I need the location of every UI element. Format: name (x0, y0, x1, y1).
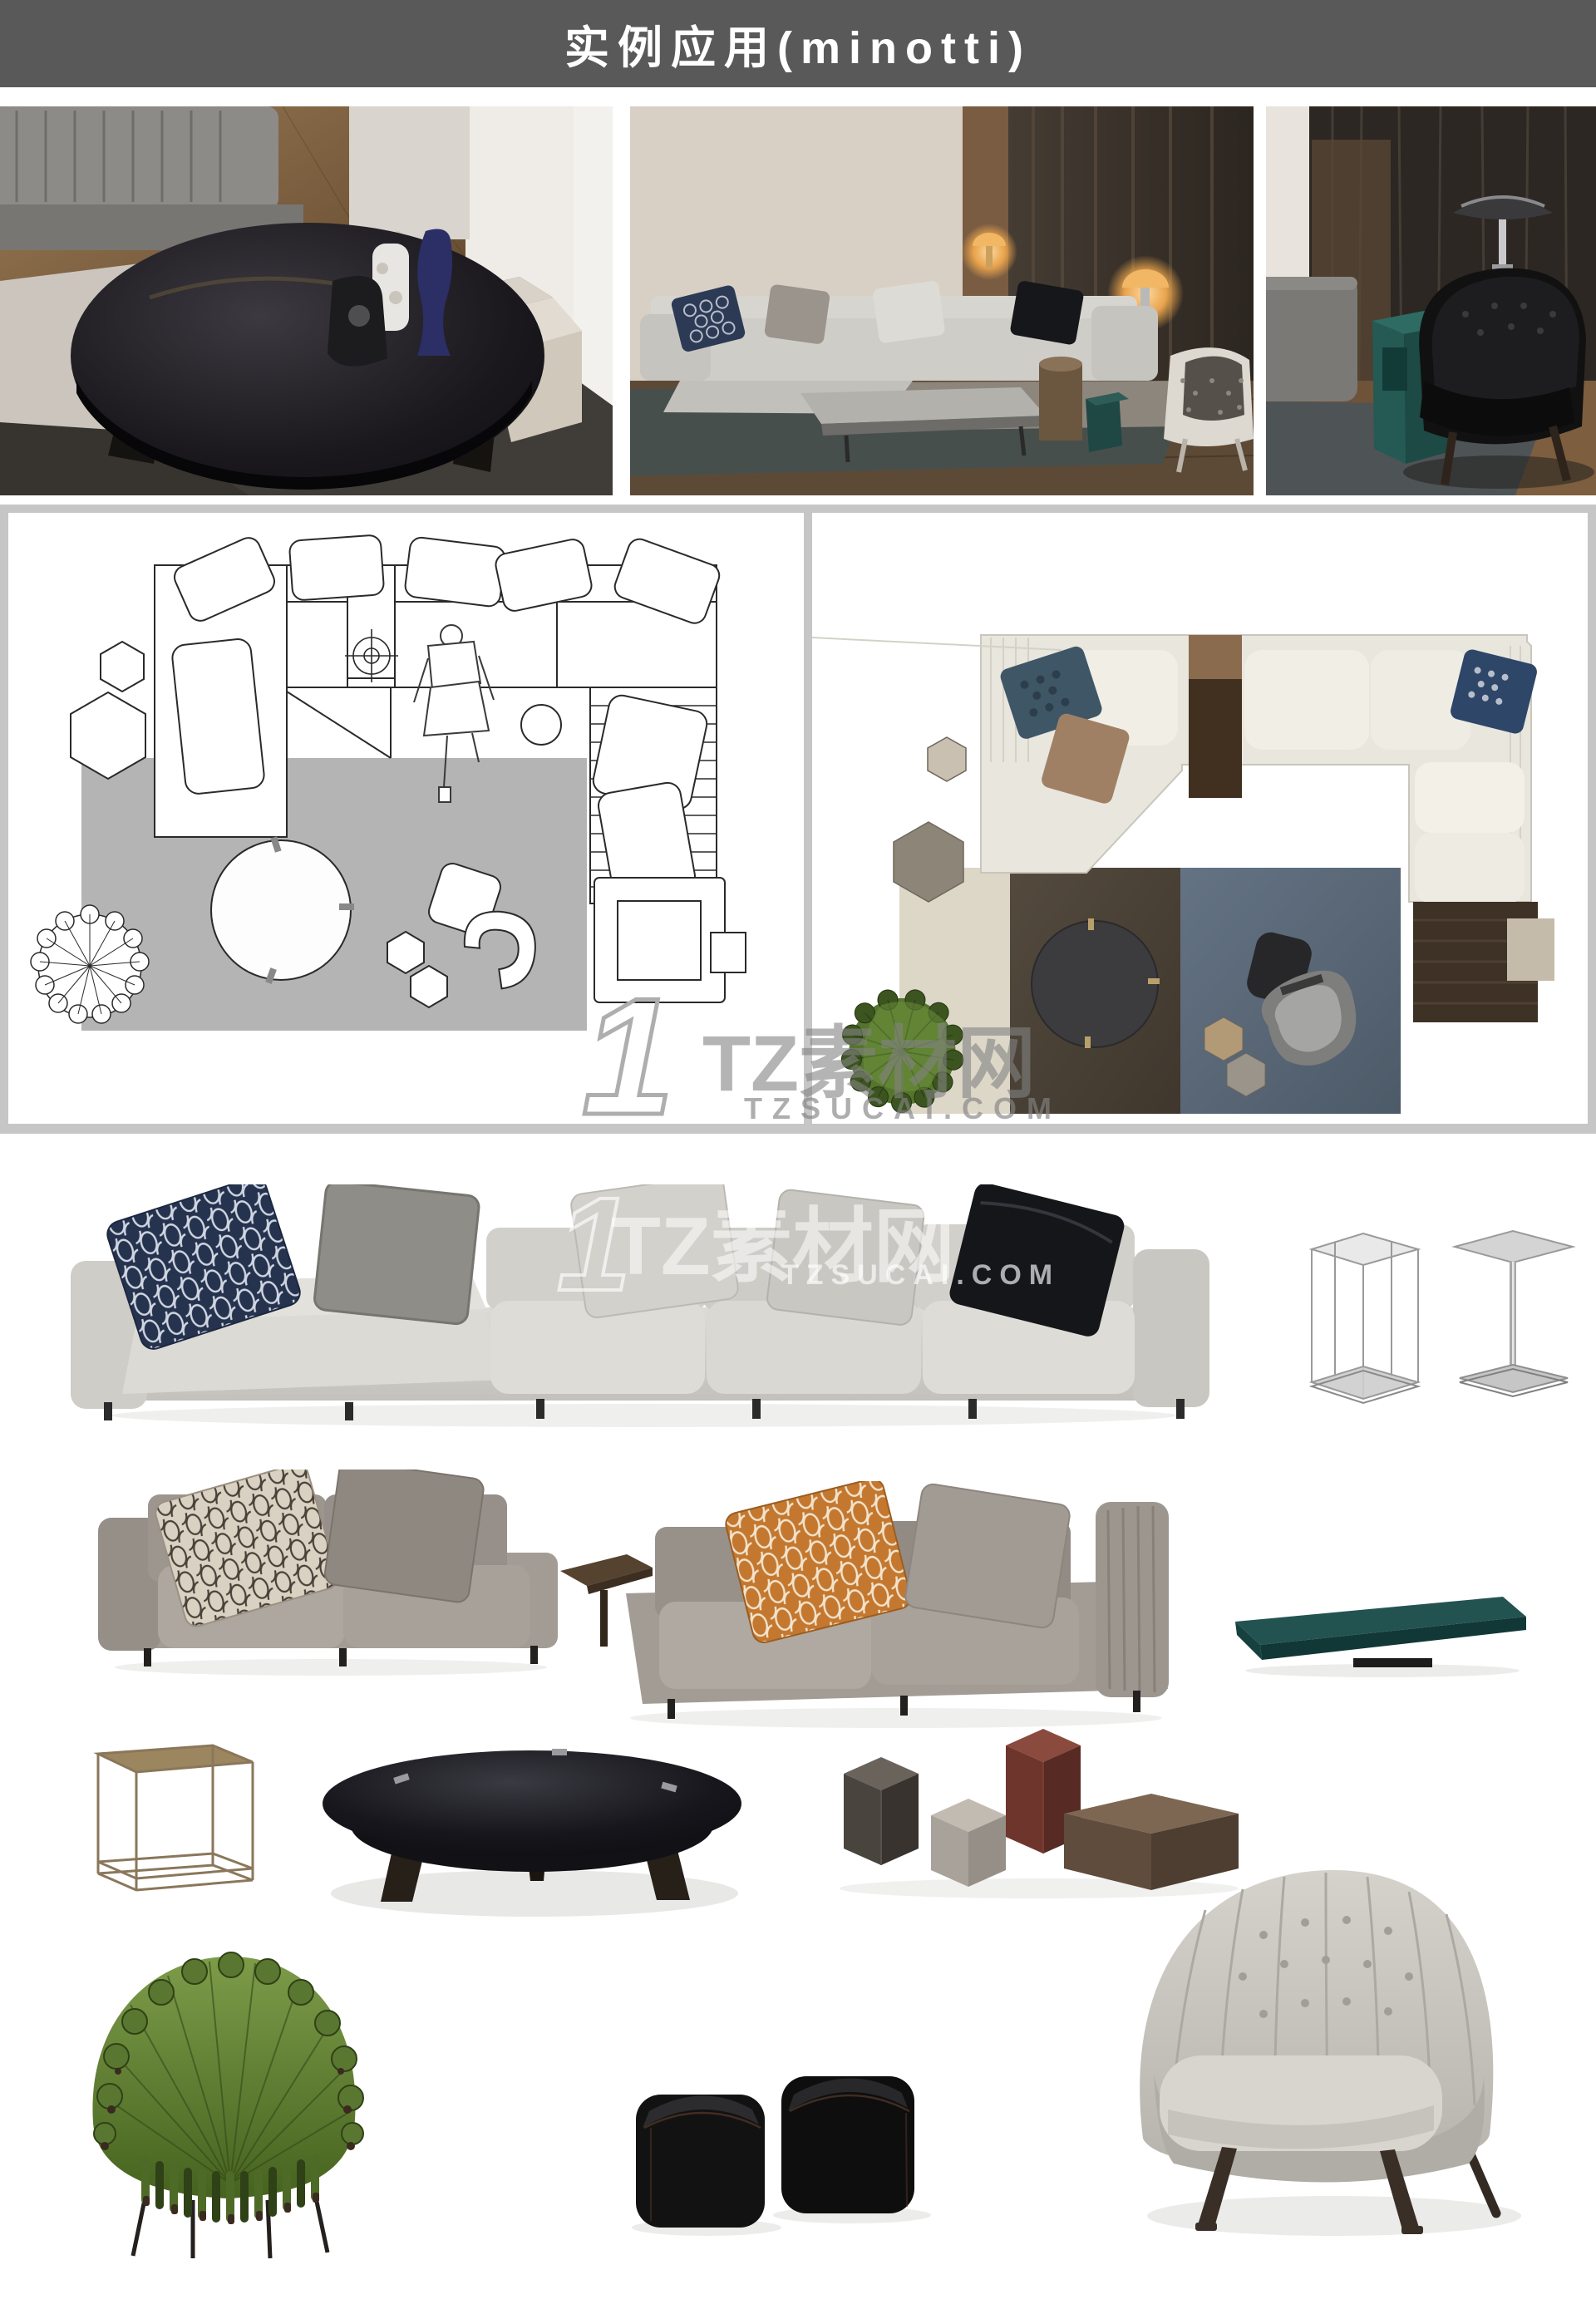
round-black-glass-coffee-table (314, 1744, 751, 1922)
page-canvas: 实例应用(minotti) (0, 0, 1596, 2304)
hexagonal-wire-side-table (1303, 1228, 1428, 1407)
pouf-left (636, 2095, 765, 2228)
tufted-fabric-armchair (1089, 1860, 1559, 2238)
photo-coffee-table-room-art (0, 106, 613, 495)
round-black-table (71, 223, 544, 490)
pedestal-top (1455, 1231, 1573, 1263)
glossy-gray-hex-pedestal (844, 1757, 919, 1865)
cad-floor-plan (8, 513, 804, 1124)
light-gray-hex-pedestal (931, 1799, 1006, 1887)
gray-two-seat-sofa (98, 1470, 572, 1677)
rplan-console-dark (1189, 679, 1242, 798)
corner-table-leg (600, 1590, 608, 1647)
photo-leather-armchair-room (1266, 106, 1596, 495)
bronze-frame-side-table (90, 1742, 268, 1896)
sofa-a-shadow (112, 1404, 1176, 1427)
plan-frame-divider (804, 505, 812, 1134)
wood-stool (1039, 357, 1082, 441)
photo-sectional-sofa-room (630, 106, 1254, 495)
plan-stool-circle (521, 705, 561, 745)
plan-frame-top (0, 505, 1596, 513)
doorway (349, 106, 470, 239)
rplan-wood-mat (1413, 902, 1554, 1022)
light-gray-sectional-sofa (71, 1184, 1218, 1430)
pouf-right (781, 2076, 914, 2213)
header-bar: 实例应用(minotti) (0, 0, 1596, 87)
photo-sectional-sofa-room-art (630, 106, 1254, 495)
chrome-pedestal-side-table (1448, 1227, 1581, 1406)
photo-leather-armchair-room-art (1266, 106, 1596, 495)
teal-lacquer-coffee-table (1229, 1592, 1532, 1679)
gray-sofa-arm (1266, 277, 1357, 401)
plan-frame-bottom (0, 1124, 1596, 1134)
rplan-beige-square (1507, 918, 1554, 981)
black-leather-poufs (628, 2070, 948, 2240)
gray-sofa-with-orange-pillow (609, 1481, 1183, 1730)
green-peacock-armchair (68, 1947, 405, 2267)
plan-square-table (594, 878, 746, 1002)
rendered-floor-plan (812, 513, 1588, 1124)
rplan-hexagons (894, 737, 966, 902)
round-table-top (323, 1750, 741, 1857)
plan-frame-left (0, 505, 8, 1134)
plan-hexagons (71, 642, 145, 779)
page-title: 实例应用(minotti) (564, 11, 1032, 76)
teal-table-base (1353, 1658, 1432, 1667)
photo-coffee-table-room (0, 106, 613, 495)
plan-frame-right (1588, 505, 1596, 1134)
